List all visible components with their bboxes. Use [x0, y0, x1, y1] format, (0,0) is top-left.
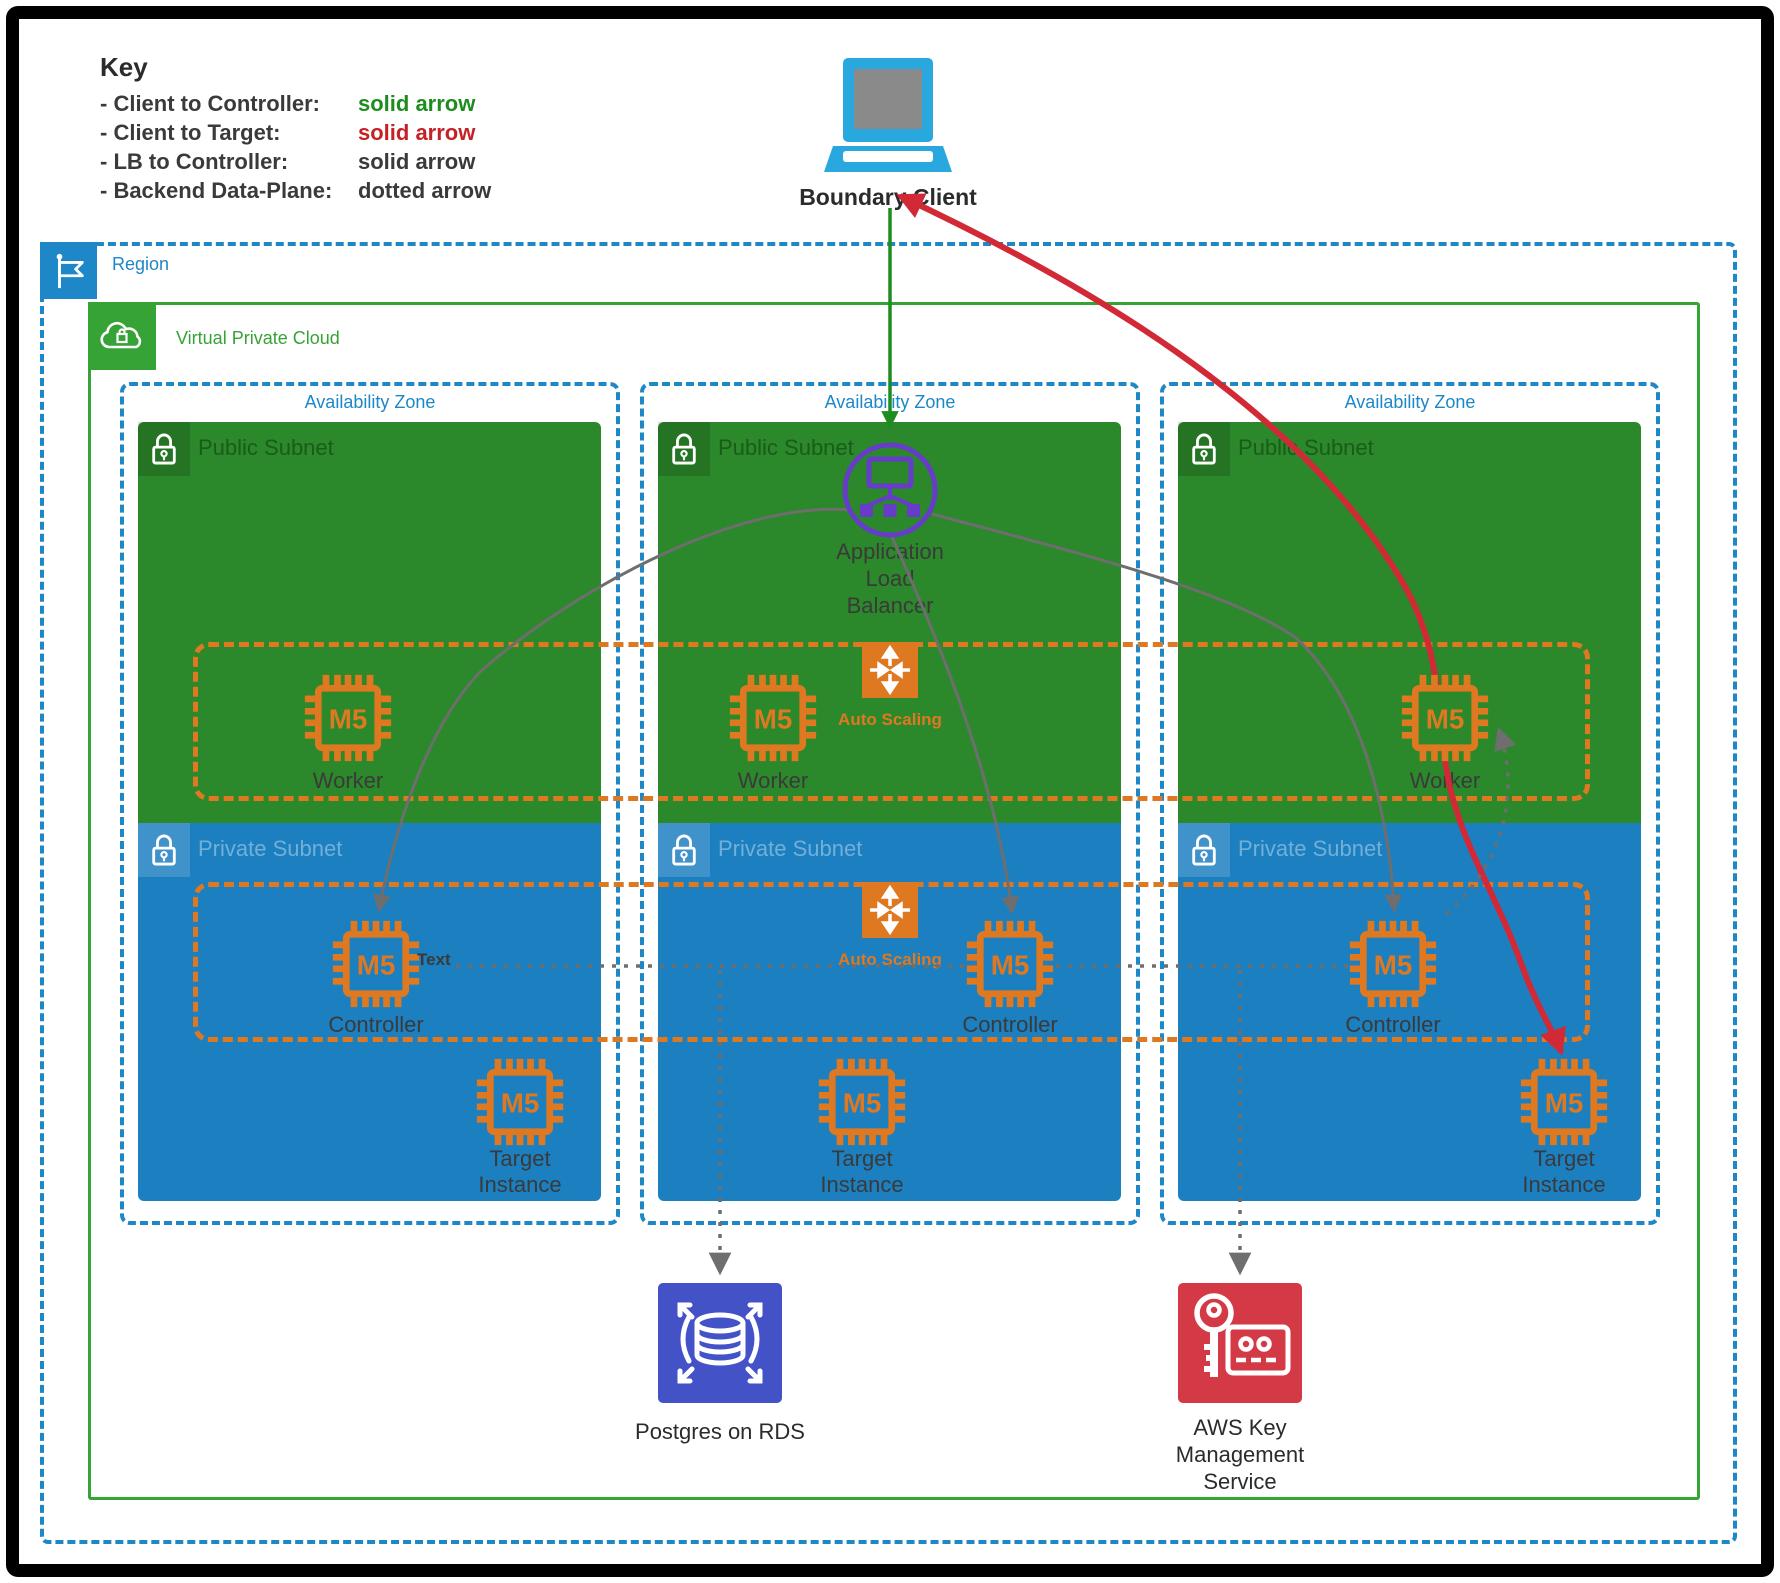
lock-icon: [138, 422, 190, 476]
application-load-balancer-icon: [840, 440, 940, 540]
controller-label: Controller: [276, 1012, 476, 1038]
svg-text:M5: M5: [1374, 950, 1413, 981]
svg-text:M5: M5: [329, 704, 368, 735]
region-label: Region: [112, 254, 169, 275]
availability-zone-label: Availability Zone: [1160, 392, 1660, 413]
legend-row-label: - Client to Target:: [100, 118, 358, 147]
controller-instance-icon: M5: [1347, 918, 1439, 1010]
kms-icon: [1178, 1283, 1302, 1403]
boundary-client-label: Boundary Client: [763, 184, 1013, 211]
target-instance-icon: M5: [474, 1056, 566, 1148]
laptop-icon: [813, 56, 963, 189]
legend-row: - Backend Data-Plane: dotted arrow: [100, 176, 491, 205]
public-subnet-label: Public Subnet: [718, 435, 854, 461]
svg-text:M5: M5: [357, 950, 396, 981]
svg-text:M5: M5: [991, 950, 1030, 981]
target-instance-icon: M5: [1518, 1056, 1610, 1148]
lock-icon: [1178, 823, 1230, 877]
worker-instance-icon: M5: [302, 672, 394, 764]
worker-instance-icon: M5: [1399, 672, 1491, 764]
legend-row-value: dotted arrow: [358, 176, 491, 205]
public-subnet-label: Public Subnet: [198, 435, 334, 461]
legend-row: - Client to Target: solid arrow: [100, 118, 491, 147]
svg-text:M5: M5: [1545, 1088, 1584, 1119]
autoscaling-icon: [862, 642, 918, 698]
kms-label: AWS Key Management Service: [1120, 1414, 1360, 1495]
controller-instance-icon: M5: [964, 918, 1056, 1010]
legend-row-label: - Client to Controller:: [100, 89, 358, 118]
legend-row-value: solid arrow: [358, 89, 475, 118]
controller-instance-icon: M5: [330, 918, 422, 1010]
worker-instance-icon: M5: [727, 672, 819, 764]
legend-title: Key: [100, 52, 491, 83]
region-flag-icon: [40, 242, 97, 299]
legend-row-label: - Backend Data-Plane:: [100, 176, 358, 205]
autoscaling-label: Auto Scaling: [805, 710, 975, 730]
vpc-cloud-icon: [88, 302, 156, 370]
alb-label: Application Load Balancer: [790, 538, 990, 619]
boundary-architecture-diagram: Key - Client to Controller: solid arrow …: [0, 0, 1780, 1583]
postgres-rds-icon: [658, 1283, 782, 1403]
target-instance-label: Target Instance: [1464, 1146, 1664, 1198]
availability-zone-label: Availability Zone: [120, 392, 620, 413]
svg-text:M5: M5: [843, 1088, 882, 1119]
legend-row: - LB to Controller: solid arrow: [100, 147, 491, 176]
svg-text:M5: M5: [754, 704, 793, 735]
worker-label: Worker: [1345, 768, 1545, 794]
private-subnet-label: Private Subnet: [718, 836, 862, 862]
public-subnet-label: Public Subnet: [1238, 435, 1374, 461]
target-instance-label: Target Instance: [420, 1146, 620, 1198]
legend-row-label: - LB to Controller:: [100, 147, 358, 176]
legend-row-value: solid arrow: [358, 118, 475, 147]
svg-text:M5: M5: [1426, 704, 1465, 735]
legend: Key - Client to Controller: solid arrow …: [100, 52, 491, 205]
rds-label: Postgres on RDS: [600, 1418, 840, 1445]
vpc-label: Virtual Private Cloud: [176, 328, 340, 349]
autoscaling-icon: [862, 882, 918, 938]
private-subnet-label: Private Subnet: [198, 836, 342, 862]
target-instance-label: Target Instance: [762, 1146, 962, 1198]
autoscaling-label: Auto Scaling: [805, 950, 975, 970]
controller-label: Controller: [910, 1012, 1110, 1038]
private-subnet-label: Private Subnet: [1238, 836, 1382, 862]
target-instance-icon: M5: [816, 1056, 908, 1148]
controller-label: Controller: [1293, 1012, 1493, 1038]
lock-icon: [138, 823, 190, 877]
worker-label: Worker: [673, 768, 873, 794]
lock-icon: [658, 422, 710, 476]
text-annotation: Text: [417, 950, 451, 970]
lock-icon: [658, 823, 710, 877]
svg-text:M5: M5: [501, 1088, 540, 1119]
availability-zone-label: Availability Zone: [640, 392, 1140, 413]
worker-label: Worker: [248, 768, 448, 794]
lock-icon: [1178, 422, 1230, 476]
legend-row: - Client to Controller: solid arrow: [100, 89, 491, 118]
legend-row-value: solid arrow: [358, 147, 475, 176]
